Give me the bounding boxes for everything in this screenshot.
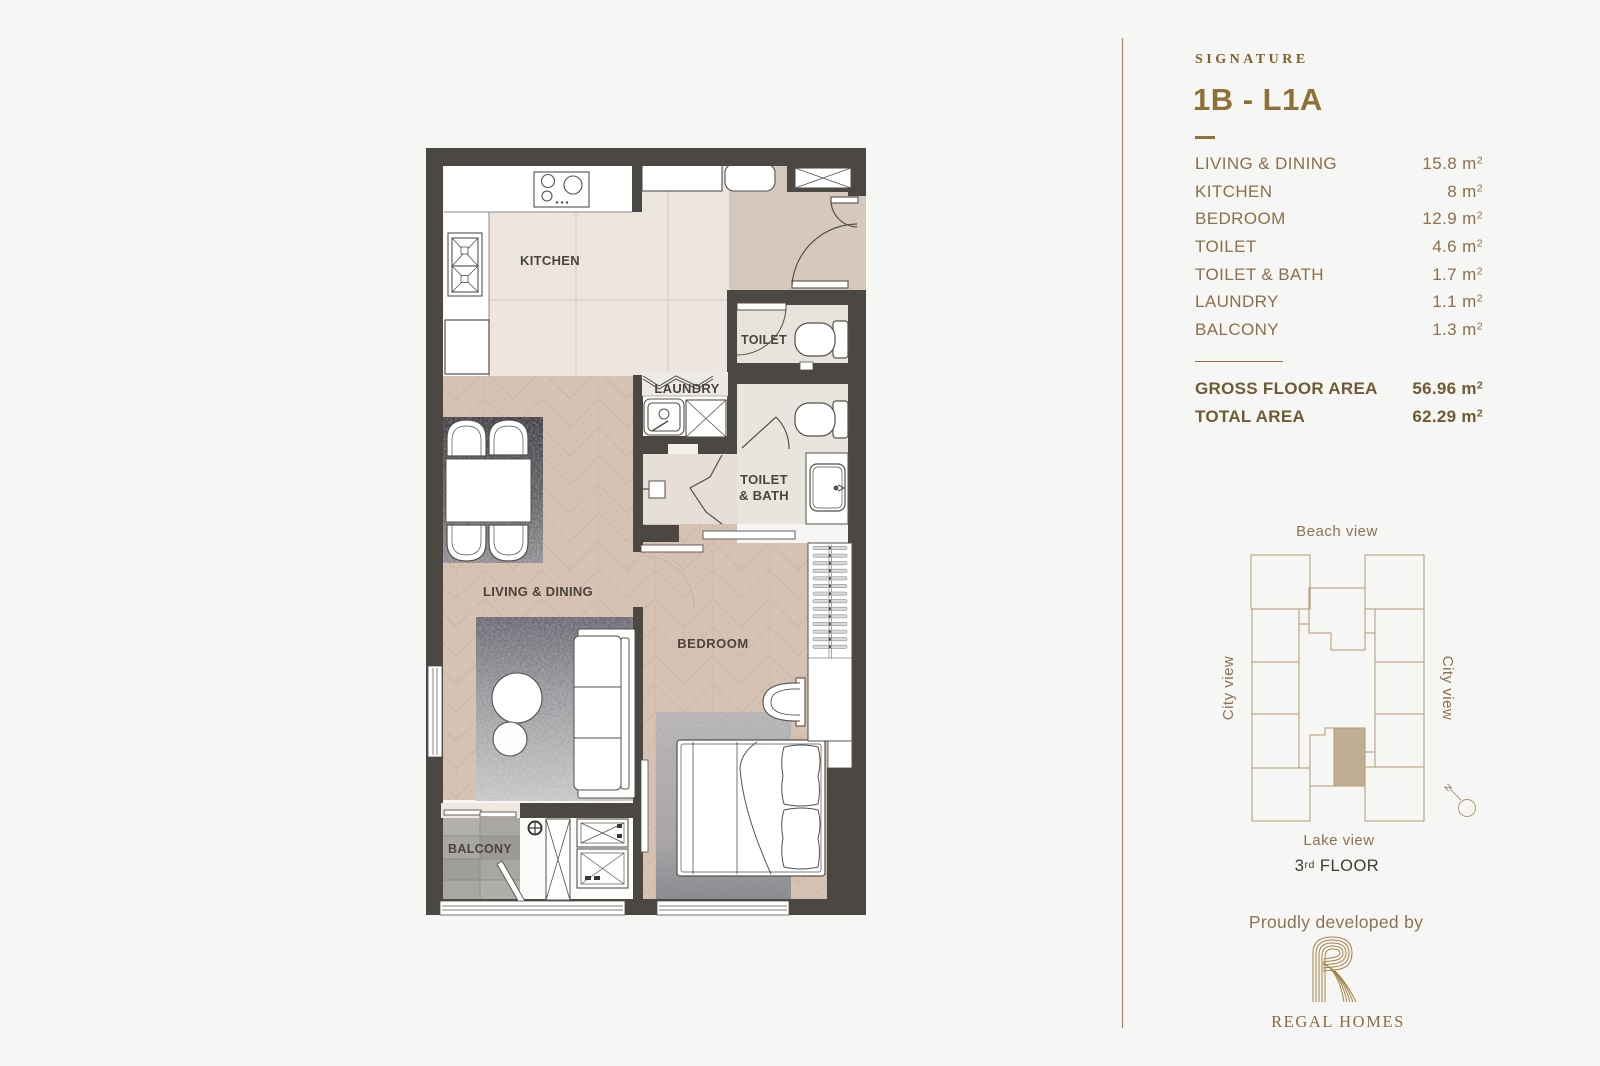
svg-text:BALCONY: BALCONY (448, 842, 512, 856)
svg-text:& BATH: & BATH (739, 488, 789, 503)
svg-text:Beach view: Beach view (1296, 523, 1378, 540)
svg-text:TOILET: TOILET (740, 472, 788, 487)
svg-text:Lake view: Lake view (1303, 832, 1374, 849)
svg-text:3rd FLOOR: 3rd FLOOR (1295, 857, 1379, 875)
svg-text:TOILET: TOILET (741, 333, 787, 347)
svg-text:Proudly developed by: Proudly developed by (1249, 912, 1423, 932)
svg-text:BEDROOM: BEDROOM (677, 636, 748, 651)
svg-text:KITCHEN: KITCHEN (520, 253, 580, 268)
svg-text:City view: City view (1220, 656, 1237, 721)
svg-text:REGAL HOMES: REGAL HOMES (1271, 1012, 1405, 1031)
svg-text:LIVING & DINING: LIVING & DINING (483, 584, 593, 599)
svg-text:LAUNDRY: LAUNDRY (654, 381, 719, 396)
svg-text:City view: City view (1439, 656, 1456, 721)
